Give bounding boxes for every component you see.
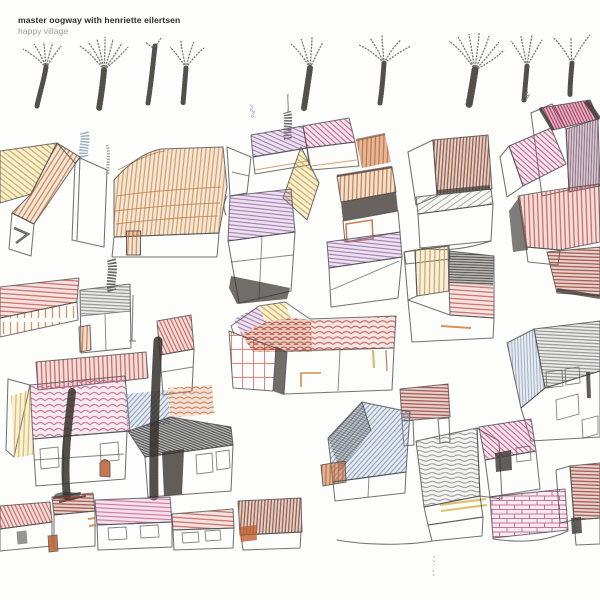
house-long-left (0, 278, 79, 337)
pencil-mark (433, 556, 434, 578)
tree-icon (23, 42, 61, 106)
door (127, 231, 141, 255)
house-chimney (79, 259, 131, 353)
village-illustration (0, 0, 600, 600)
tree-icon (145, 38, 161, 103)
cottage-row-bottom (0, 493, 302, 552)
tree-icon (359, 35, 411, 103)
tree-row (23, 32, 590, 118)
tree-icon (291, 37, 323, 108)
house-cluster-bottomright (321, 384, 600, 545)
house-center-right (404, 246, 494, 342)
house-center-multicolor (229, 302, 396, 395)
house-brownroof (408, 135, 493, 250)
tree-icon (511, 35, 542, 100)
chimney-smoke-icon (84, 132, 85, 157)
house-thatched (107, 145, 227, 257)
door (48, 535, 58, 552)
tree-trunk-icon (154, 341, 158, 496)
tree-trunk-icon (66, 392, 72, 497)
lantern (100, 460, 110, 478)
house-big-lowerleft (6, 352, 233, 497)
dark-door (162, 449, 184, 496)
tree-icon (170, 41, 204, 104)
house-redroof-right (509, 184, 600, 297)
tree-icon (553, 35, 590, 95)
tree-icon (449, 32, 504, 105)
house-topleft (0, 132, 107, 256)
album-cover: master oogway with henriette eilertsen h… (0, 0, 600, 600)
blue-fleck (250, 105, 255, 118)
house-cluster-middle (224, 94, 402, 307)
house-cluster-topright (500, 92, 600, 197)
tree-icon (80, 37, 128, 109)
